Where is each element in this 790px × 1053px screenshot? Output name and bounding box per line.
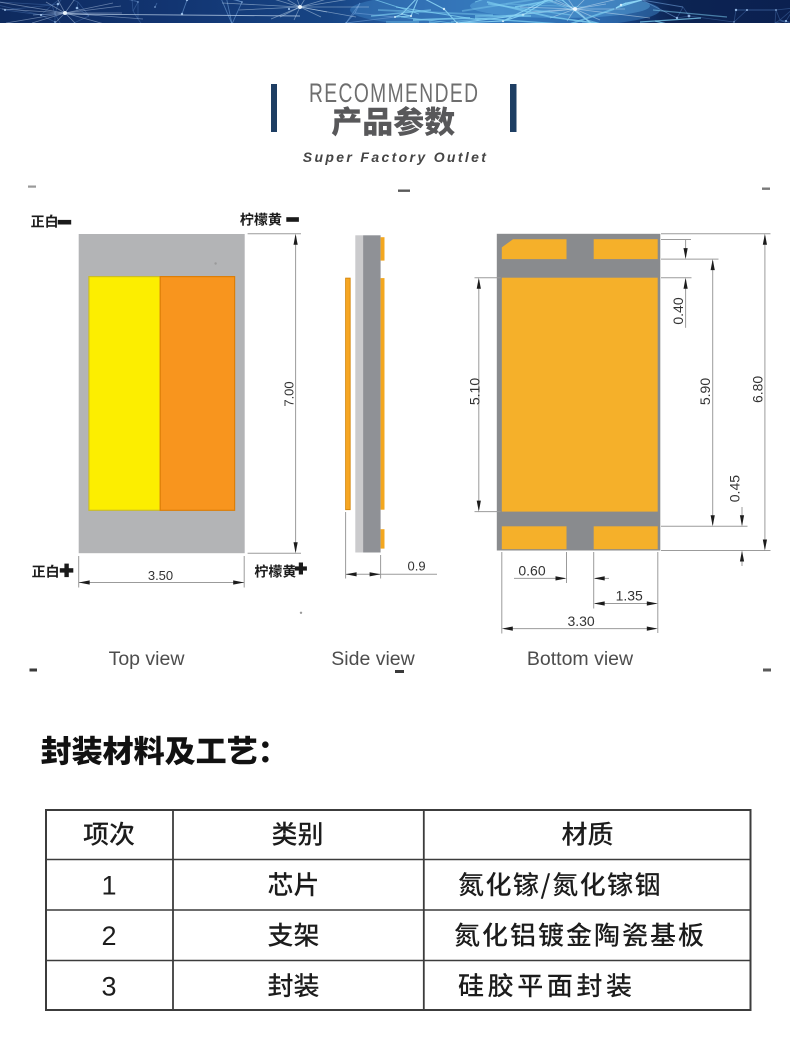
svg-text:5.10: 5.10 (467, 378, 483, 405)
svg-text:7.00: 7.00 (281, 381, 296, 406)
svg-text:3.30: 3.30 (567, 613, 594, 629)
svg-text:6.80: 6.80 (750, 376, 766, 403)
svg-text:0.45: 0.45 (727, 475, 743, 502)
svg-text:0.60: 0.60 (518, 563, 545, 579)
svg-text:5.90: 5.90 (697, 378, 713, 405)
svg-text:Bottom view: Bottom view (527, 648, 634, 670)
svg-text:Super Factory Outlet: Super Factory Outlet (303, 149, 488, 165)
svg-text:Side view: Side view (331, 648, 415, 670)
svg-text:2: 2 (101, 921, 116, 951)
svg-text:RECOMMENDED: RECOMMENDED (309, 78, 479, 108)
svg-text:3.50: 3.50 (148, 568, 173, 583)
svg-text:0.9: 0.9 (408, 559, 426, 574)
svg-text:0.40: 0.40 (670, 297, 686, 324)
svg-text:1.35: 1.35 (616, 588, 643, 604)
svg-text:Top view: Top view (109, 648, 186, 670)
svg-text:3: 3 (101, 972, 116, 1002)
svg-text:1: 1 (101, 871, 116, 901)
